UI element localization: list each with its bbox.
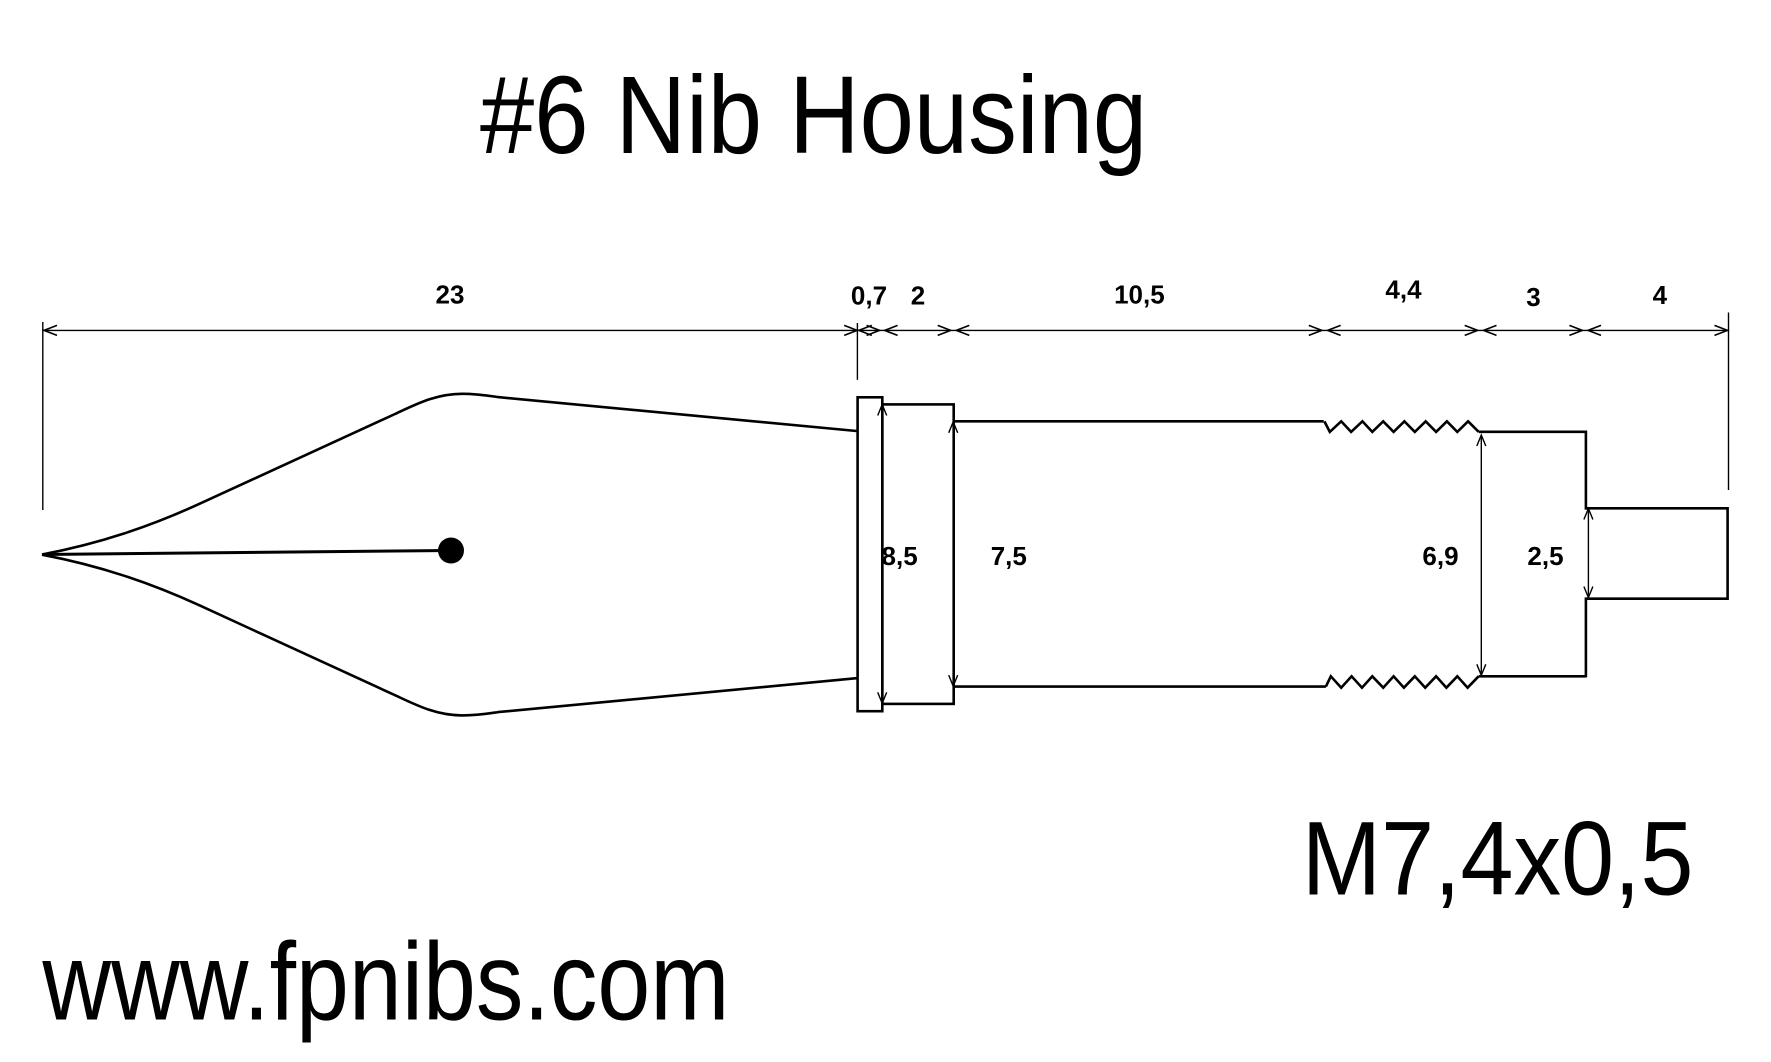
svg-text:2: 2: [911, 281, 925, 311]
svg-text:#6 Nib Housing: #6 Nib Housing: [480, 55, 1147, 178]
svg-text:2,5: 2,5: [1527, 541, 1563, 571]
svg-text:3: 3: [1526, 282, 1540, 312]
svg-text:www.fpnibs.com: www.fpnibs.com: [41, 920, 729, 1043]
svg-text:0,7: 0,7: [851, 281, 887, 311]
svg-text:4,4: 4,4: [1385, 274, 1422, 304]
svg-text:10,5: 10,5: [1114, 280, 1165, 310]
svg-text:7,5: 7,5: [991, 541, 1027, 571]
svg-text:8,5: 8,5: [882, 541, 918, 571]
svg-text:6,9: 6,9: [1422, 541, 1458, 571]
svg-text:23: 23: [436, 280, 465, 310]
svg-text:M7,4x0,5: M7,4x0,5: [1302, 800, 1694, 917]
svg-text:4: 4: [1653, 280, 1668, 310]
